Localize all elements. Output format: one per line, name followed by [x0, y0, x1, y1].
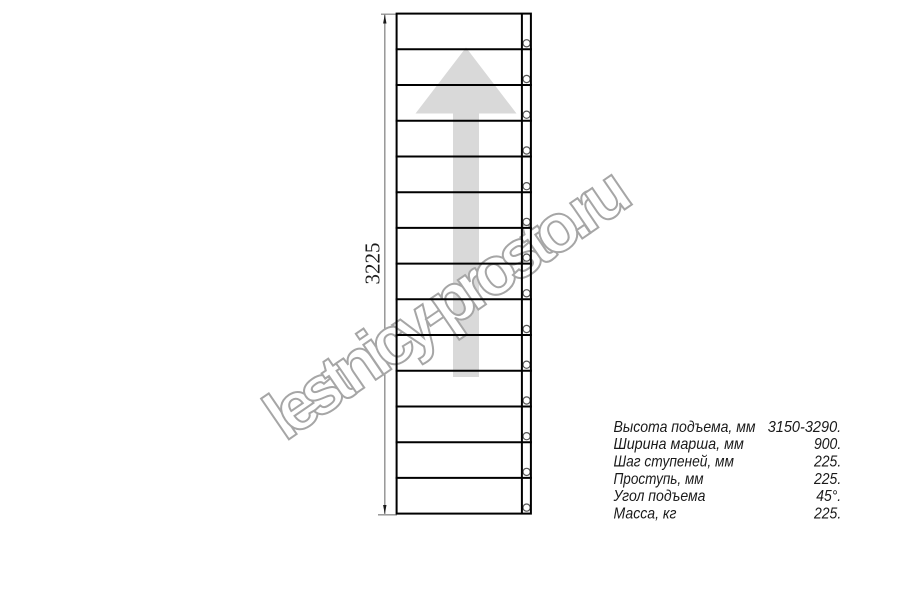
svg-text:225.: 225. [813, 471, 841, 488]
svg-text:45°.: 45°. [816, 488, 841, 505]
svg-text:900.: 900. [814, 436, 841, 453]
svg-text:3225: 3225 [361, 243, 385, 285]
svg-text:225.: 225. [813, 505, 841, 522]
svg-text:225.: 225. [813, 454, 841, 471]
svg-text:Проступь, мм: Проступь, мм [614, 471, 704, 488]
svg-text:Шаг ступеней, мм: Шаг ступеней, мм [614, 454, 734, 471]
svg-text:3150-3290.: 3150-3290. [768, 419, 842, 436]
svg-text:Ширина марша, мм: Ширина марша, мм [614, 436, 744, 453]
svg-text:Масса, кг: Масса, кг [614, 505, 677, 522]
svg-text:Угол подъема: Угол подъема [613, 488, 706, 505]
svg-text:Высота подъема, мм: Высота подъема, мм [614, 419, 756, 436]
